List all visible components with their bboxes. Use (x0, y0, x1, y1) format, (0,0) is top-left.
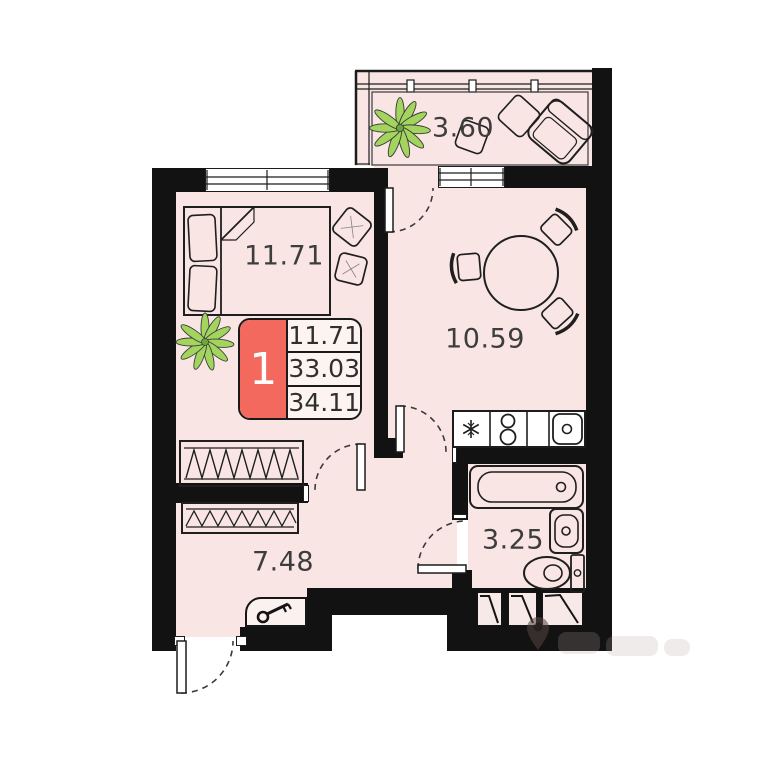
wall-mid-bottom-band (307, 588, 457, 615)
bathroom-area-label: 3.25 (482, 525, 544, 556)
wall-bedroom-top-l (152, 168, 205, 192)
wall-left (152, 168, 176, 651)
jamb-kitchen-door (452, 447, 457, 463)
key-cabinet (245, 597, 307, 627)
hallway-area-label: 7.48 (252, 547, 314, 578)
jamb-bedroom-door (303, 485, 309, 502)
wall-right (586, 180, 612, 651)
floorplan-canvas: 3.60 11.71 10.59 3.25 7.48 1 11.71 33.03… (0, 0, 768, 768)
wall-stub-kitchen-door (388, 438, 403, 458)
room-kitchen-living (388, 186, 586, 446)
window-kitchen (438, 166, 505, 188)
wall-bath-left-upper (452, 464, 468, 520)
window-bedroom (205, 168, 330, 192)
wall-kitchen-bottom (452, 446, 612, 464)
jamb-bath-door (453, 514, 467, 519)
wall-bedroom-kitchen (374, 168, 388, 458)
jamb-entry-right (236, 636, 247, 646)
vent-shaft-3 (542, 592, 583, 626)
living-area-value: 11.71 (288, 320, 360, 353)
unit-number-badge: 1 (240, 320, 288, 418)
kitchen-counter (452, 410, 586, 448)
wall-mid-bottom-col (307, 615, 332, 651)
room-hallway (176, 458, 457, 588)
balcony-area-label: 3.60 (432, 113, 494, 144)
wall-bedroom-top-r (330, 168, 374, 192)
unit-info-values: 11.71 33.03 34.11 (288, 320, 360, 418)
kitchen-area-label: 10.59 (445, 324, 525, 355)
door-leaf (177, 641, 186, 693)
wall-bath-left-stub (452, 570, 472, 588)
jamb-entry-left (174, 636, 185, 646)
wall-balcony-bottom (505, 166, 592, 188)
area-value: 33.03 (288, 353, 360, 386)
wall-bedroom-bottom (152, 483, 308, 503)
wall-balcony-right (592, 68, 612, 180)
wall-under-keybox (240, 627, 307, 651)
unit-info-box: 1 11.71 33.03 34.11 (238, 318, 362, 420)
door-entrance (177, 641, 233, 693)
vent-shaft-1 (477, 592, 502, 626)
total-area-value: 34.11 (288, 387, 360, 418)
bedroom-area-label: 11.71 (244, 241, 324, 272)
vent-shaft-2 (508, 592, 537, 626)
